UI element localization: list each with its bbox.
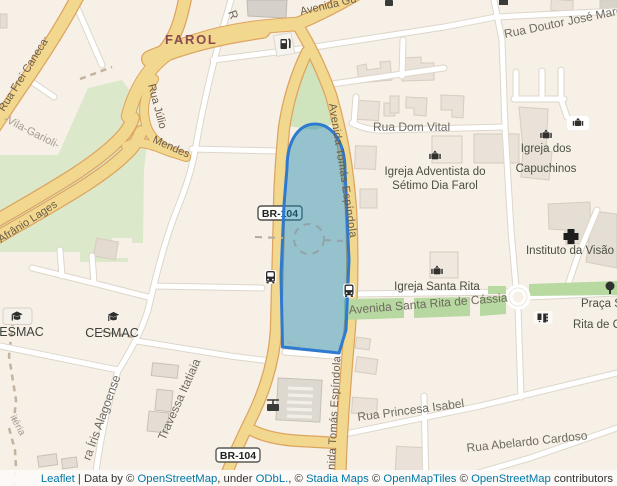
- svg-text:Igreja Adventista do: Igreja Adventista do: [384, 166, 485, 178]
- svg-text:Rita de C: Rita de C: [573, 319, 617, 331]
- svg-text:Instituto da Visão: Instituto da Visão: [526, 245, 614, 257]
- svg-text:Igreja dos: Igreja dos: [521, 143, 572, 155]
- svg-text:Igreja Santa Rita: Igreja Santa Rita: [394, 281, 480, 293]
- svg-text:FAROL: FAROL: [165, 32, 218, 47]
- svg-text:Capuchinos: Capuchinos: [516, 163, 577, 175]
- svg-text:Praça S: Praça S: [581, 298, 617, 310]
- svg-text:Leaflet | Data by © OpenStreet: Leaflet | Data by © OpenStreetMap, under…: [41, 473, 613, 485]
- svg-text:CESMAC: CESMAC: [85, 326, 138, 340]
- svg-text:Sétimo Dia Farol: Sétimo Dia Farol: [392, 180, 478, 192]
- svg-text:CESMAC: CESMAC: [0, 325, 44, 339]
- svg-text:BR-104: BR-104: [220, 450, 256, 462]
- svg-text:Rua Dom Vital: Rua Dom Vital: [373, 120, 450, 134]
